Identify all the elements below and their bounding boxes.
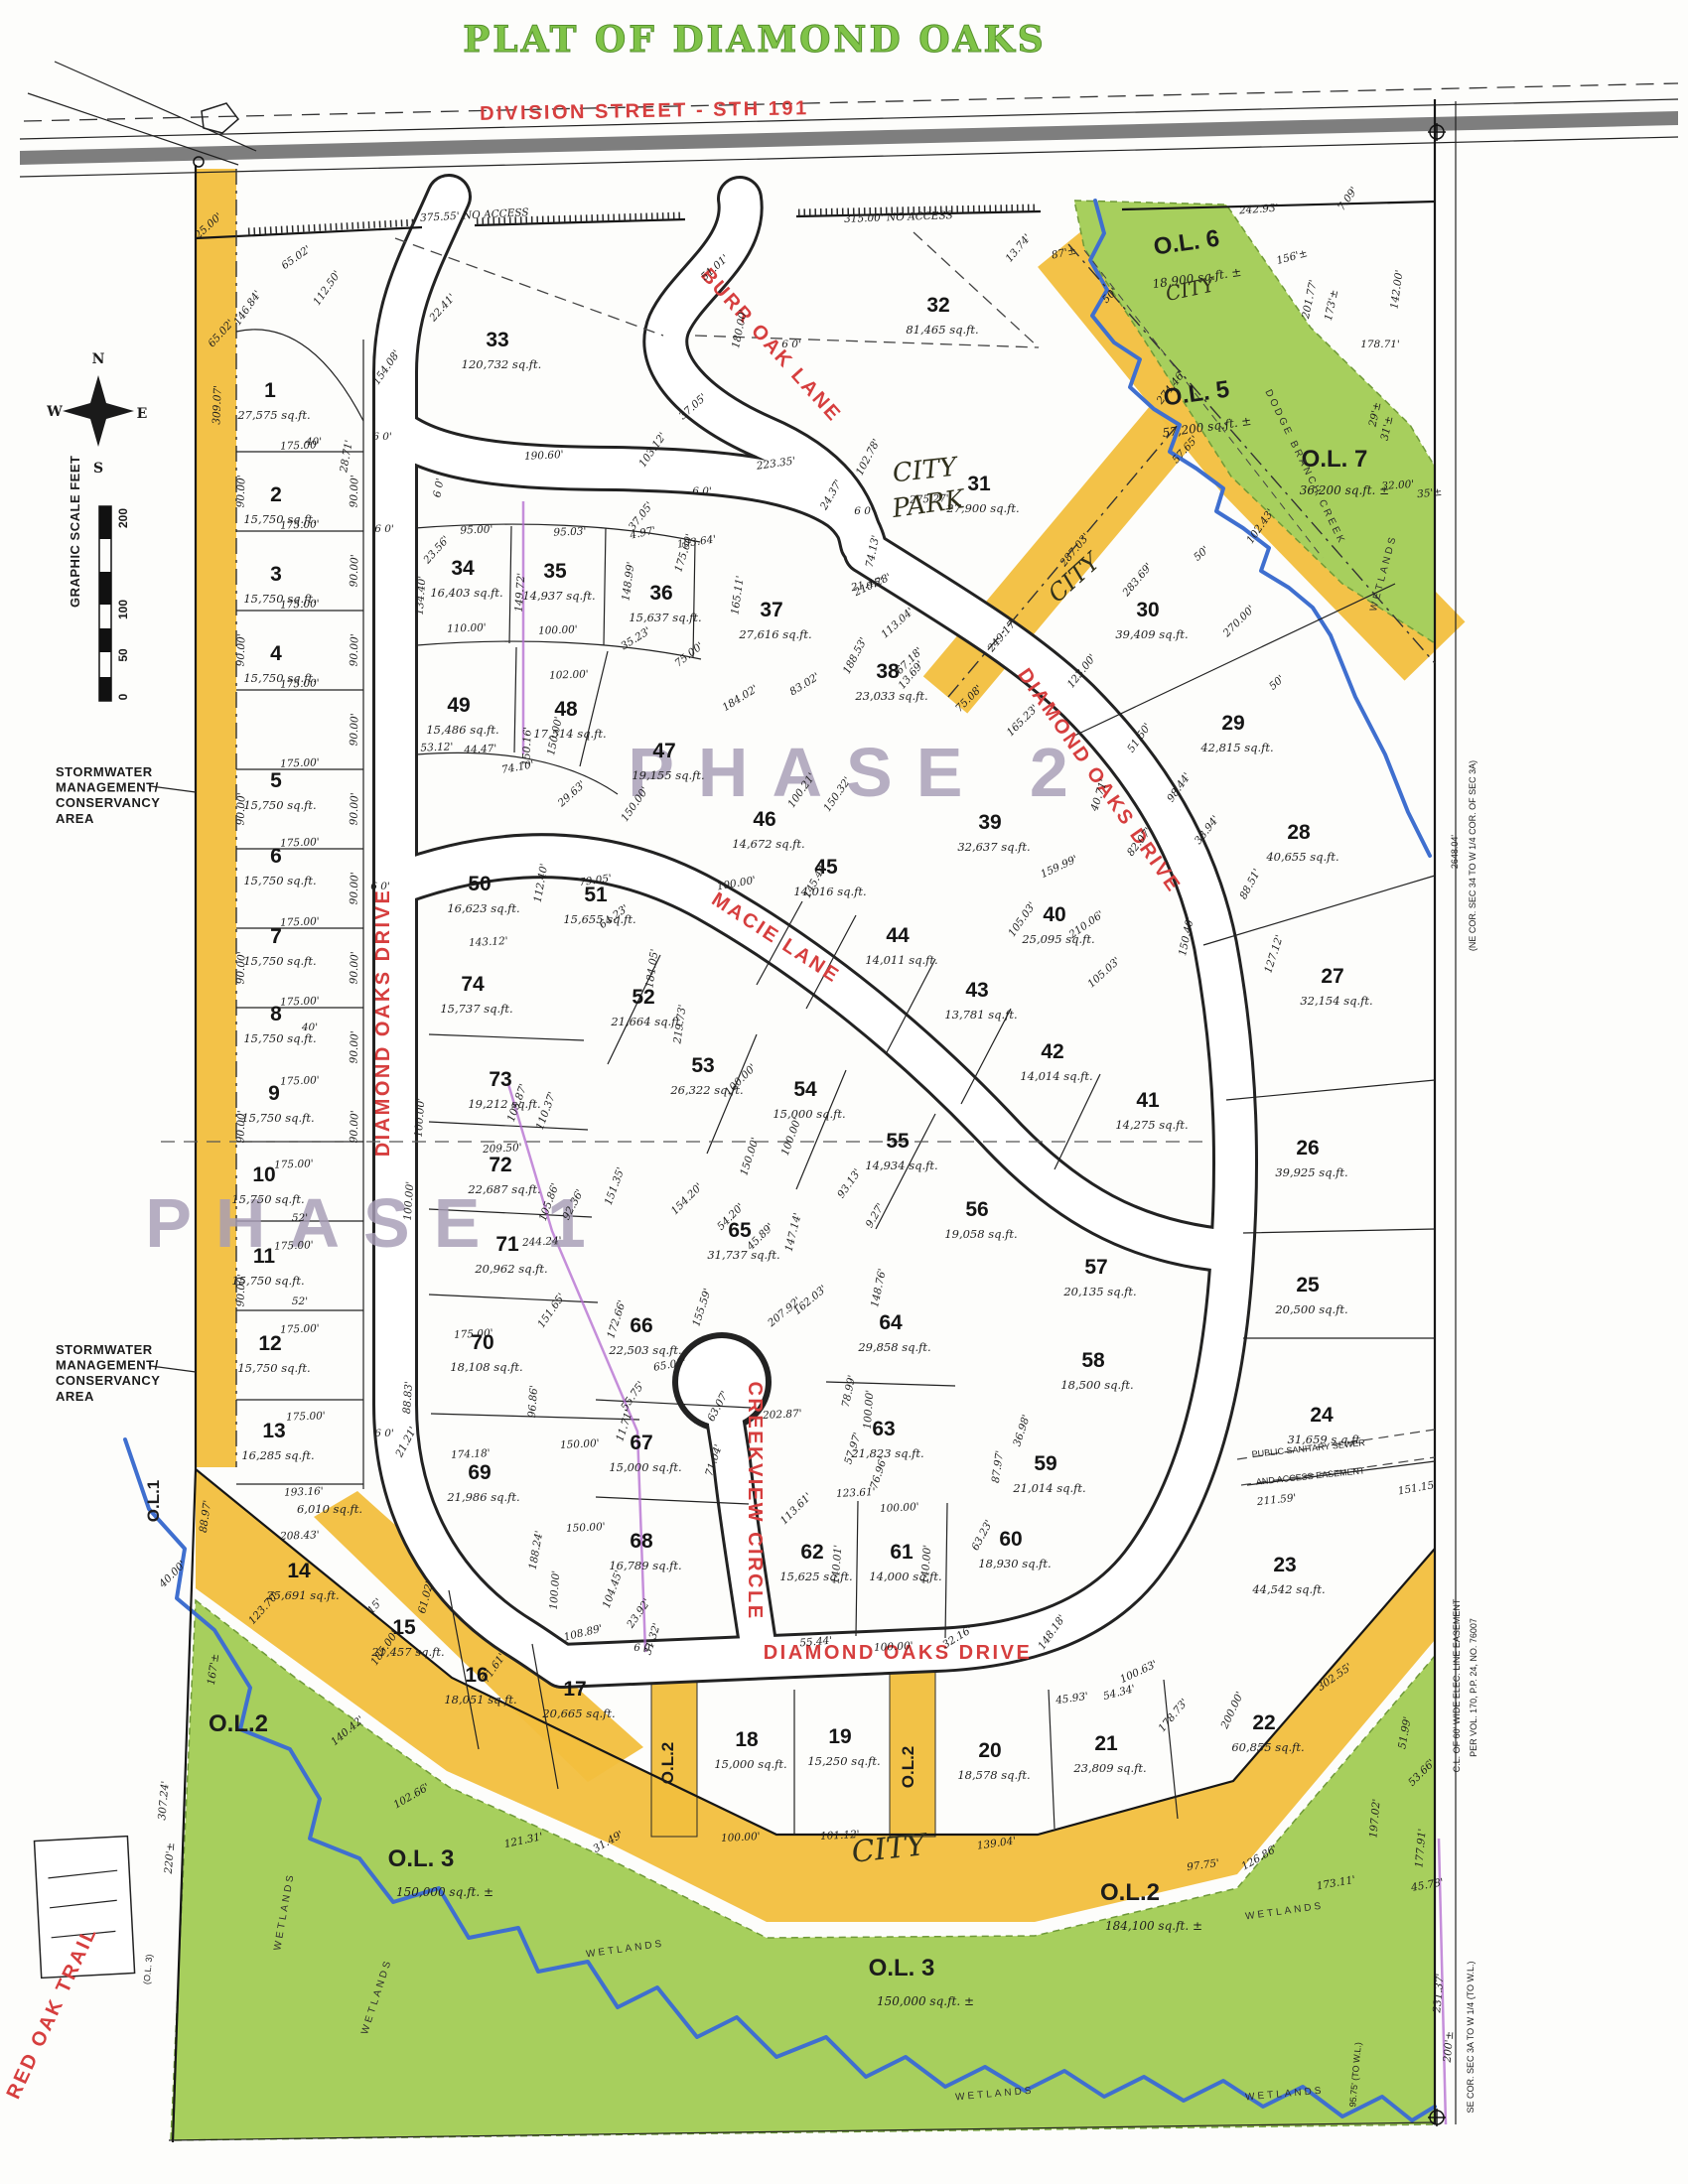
lot-area: 32,637 sq.ft. [957,840,1030,854]
dimension-label: 147.14' [782,1212,803,1253]
stormwater-leader-lines [151,786,196,1372]
dimension-label: 178.73' [1156,1697,1191,1734]
lot-number: 43 [965,979,988,1002]
outlot-label: O.L.2 [899,1746,917,1789]
lot-number: 10 [252,1163,275,1186]
dimension-label: 95.00' [460,523,492,536]
lot-number: 68 [630,1530,653,1553]
dimension-label: 156'± [1275,247,1309,267]
dimension-label: 22.41' [427,292,459,325]
dimension-label: 159.99' [1039,853,1079,881]
dimension-label: 90.00' [348,792,360,825]
dimension-label: 172.66' [605,1298,629,1339]
lot-area: 15,750 sq.ft. [237,1361,310,1375]
plat-map: PLAT OF DIAMOND OAKS PHASE 1PHASE 2 DIVI… [0,0,1688,2184]
lot-number: 25 [1296,1274,1320,1297]
dimension-label: 175.00' [280,915,320,928]
lot-number: 4 [270,642,282,665]
lot-number: 37 [760,599,782,621]
annotation-note: GRAPHIC SCALE FEET [68,456,82,608]
dimension-label: 54.34' [1102,1683,1137,1703]
lot-area: 19,155 sq.ft. [632,768,704,782]
dimension-label: 105.03' [1085,955,1122,990]
lot-number: 58 [1081,1349,1105,1372]
dimension-label: 165.11' [729,575,746,615]
dimension-label: 100.00' [779,1116,804,1157]
lot-number: 41 [1136,1089,1160,1112]
division-dashed-line [24,83,1678,121]
lot-number: 22 [1252,1711,1275,1734]
dimension-label: 193.16' [284,1485,324,1498]
dimension-label: 175.00' [280,995,320,1008]
lot-number: 63 [872,1418,895,1440]
lot-area: 21,014 sq.ft. [1012,1481,1085,1495]
plat-map-sheet: PLAT OF DIAMOND OAKS PHASE 1PHASE 2 DIVI… [0,0,1688,2184]
dimension-label: 104.45' [601,1569,626,1609]
dimension-label: 100.00' [413,1098,428,1138]
dimension-label: 108.89' [563,1622,604,1643]
outlot2-street-stub-east [890,1648,935,1837]
dimension-label: 6 0' [370,881,390,892]
annotation-lota: 6,010 sq.ft. [297,1502,362,1516]
lot-number: 35 [543,560,567,583]
dimension-label: 242.93' [1238,203,1279,217]
dimension-label: 151.65' [535,1292,568,1330]
dimension-label: 88.51' [1237,867,1263,901]
street-name-label: DIAMOND OAKS DRIVE [372,888,394,1158]
lot-area: 14,937 sq.ft. [522,589,595,603]
lot-area: 23,809 sq.ft. [1072,1761,1146,1775]
dimension-label: 309.07' [211,385,223,425]
lot-number: 69 [468,1461,491,1484]
dimension-label: 175.00' [280,439,320,452]
dimension-label: 100.63' [1118,1658,1159,1686]
lot-area: 15,486 sq.ft. [426,723,498,737]
dimension-label: 175.00' [274,1239,314,1252]
lot-area: 18,578 sq.ft. [957,1768,1030,1782]
dimension-label: 90.00' [348,475,360,507]
lot-area: 20,962 sq.ft. [474,1262,547,1276]
lot-number: 59 [1034,1452,1056,1475]
lot-area: 120,732 sq.ft. [462,357,542,371]
dimension-label: 211.59' [1255,1492,1297,1508]
lot-number: 54 [793,1078,817,1101]
division-street-band [20,62,1678,177]
annotation-compass: S [93,461,103,477]
dimension-label: 315.00' NO ACCESS [844,209,953,225]
dimension-label: 95.03' [553,525,586,538]
lot-area: 14,934 sq.ft. [865,1159,937,1172]
dimension-label: 219.73' [671,1004,689,1045]
lot-area: 21,664 sq.ft. [610,1015,683,1028]
dimension-label: 100.00' [721,1831,761,1844]
dimension-label: 90.00' [348,554,360,587]
outlot-area: 150,000 sq.ft. ± [877,1994,974,2008]
lot-number: 5 [270,769,282,792]
dimension-label: 90.00' [234,1110,247,1143]
dimension-label: 100.00' [880,1501,919,1515]
dimension-label: 32.00' [1381,478,1415,492]
lot-number: 55 [886,1130,910,1153]
dimension-label: 174.18' [451,1447,491,1461]
east-lot-separators [1072,584,1435,1485]
lot-number: 24 [1310,1404,1334,1427]
dimension-label: 36.98' [1011,1414,1033,1448]
outlot-area: 184,100 sq.ft. ± [1105,1919,1202,1933]
dimension-label: 6 0' [692,485,712,497]
lot-number: 61 [890,1541,914,1564]
lot-area: 20,500 sq.ft. [1274,1302,1347,1316]
dimension-label: 113.04' [879,606,915,640]
dimension-label: 7.09' [1336,185,1360,212]
lot-number: 39 [978,811,1001,834]
lot-area: 14,275 sq.ft. [1115,1118,1188,1132]
outlot-label: O.L.2 [1100,1879,1160,1906]
lot-area: 81,465 sq.ft. [906,323,978,337]
annotation-compass: W [46,404,63,420]
dimension-label: 29.63' [555,778,588,810]
annotation-note: STORMWATERMANAGEMENT/CONSERVANCYAREA [56,1342,160,1404]
dimension-label: 23.92' [625,1596,653,1631]
lot-number: 67 [630,1432,652,1454]
dimension-label: 200.00' [1218,1690,1246,1731]
lot-area: 15,737 sq.ft. [440,1002,512,1016]
dimension-label: 6 0' [372,431,392,443]
annotation-scalenum: 200 [116,508,130,528]
lot-area: 18,500 sq.ft. [1060,1378,1133,1392]
dimension-label: 13.74' [1004,232,1034,265]
lot-number: 2 [270,483,282,506]
lot-number: 46 [753,808,775,831]
dimension-label: 148.99' [620,561,636,602]
lot-area: 16,285 sq.ft. [241,1448,314,1462]
annotation-tiny: (NE COR. SEC 34 TO W 1/4 COR. OF SEC 3A) [1468,760,1477,951]
dimension-label: 175.00' [280,677,320,690]
lot-number: 66 [630,1314,652,1337]
dimension-label: 102.00' [549,668,589,681]
outlot-label: O.L.1 [144,1480,163,1523]
lot-area: 23,033 sq.ft. [854,689,927,703]
outlot-label: O.L. 3 [388,1845,455,1872]
lot-area: 16,789 sq.ft. [609,1559,681,1572]
dimension-label: 150.00' [566,1521,606,1535]
lot-area: 15,000 sq.ft. [714,1757,786,1771]
dimension-label: 184.02' [720,683,760,714]
lot-area: 15,000 sq.ft. [609,1460,681,1474]
lot-number: 11 [253,1245,276,1268]
dimension-label: 90.00' [348,1110,360,1143]
dimension-label: 87.97' [990,1449,1006,1483]
lot-area: 15,000 sq.ft. [773,1107,845,1121]
dimension-label: 50' [1267,673,1287,693]
annotation-scalenum: 50 [116,648,130,662]
dimension-label: 155.59' [690,1287,714,1327]
lot-area: 19,058 sq.ft. [944,1227,1017,1241]
lot-number: 36 [649,582,672,605]
dimension-label: 6 0' [374,523,394,535]
dimension-label: 6 0' [781,339,801,350]
annotation-tiny: C.L. OF 60' WIDE ELEC. LINE EASEMENT [1452,1598,1462,1772]
dimension-label: 113.61' [778,1491,815,1528]
lot-area: 15,750 sq.ft. [241,1111,314,1125]
dimension-label: 175.00' [280,1074,320,1087]
dimension-label: 184.05' [643,948,660,989]
lot-area: 15,750 sq.ft. [243,798,316,812]
lot-area: 40,655 sq.ft. [1265,850,1338,864]
dimension-label: 100.00' [538,623,578,636]
dimension-label: 150.00' [560,1437,600,1451]
lot-number: 56 [965,1198,988,1221]
dimension-label: 190.60' [524,449,564,463]
dimension-label: 52' [292,1212,308,1224]
dimension-label: 90.00' [348,872,360,904]
annotation-hand: CITY [891,452,960,488]
outlot-label: O.L. 3 [869,1955,935,1981]
scale-seg [99,628,111,652]
dimension-label: 44.47' [463,743,497,756]
dimension-label: 127.12' [1262,933,1286,974]
lot-number: 19 [828,1725,851,1748]
lot-area: 14,011 sq.ft. [865,953,937,967]
lot-number: 42 [1041,1040,1063,1063]
annotation-compass: E [137,406,148,422]
dimension-label: 134.40' [414,576,429,615]
dimension-label: 173'± [1323,289,1340,323]
dimension-label: 110.00' [447,621,487,634]
dimension-label: 40.00' [156,1559,188,1590]
lot-number: 3 [270,563,282,586]
dimension-label: 188.24' [527,1530,546,1570]
page-title: PLAT OF DIAMOND OAKS [463,19,1047,61]
lot-number: 49 [447,694,470,717]
dimension-label: 6 0' [431,478,446,498]
dimension-label: 6 0' [854,505,874,517]
outlot-label: O.L.2 [209,1710,268,1737]
dimension-label: 100.00' [874,1640,914,1654]
lot-number: 40 [1043,903,1065,926]
dimension-label: 188.53' [841,635,870,676]
lot-number: 50 [468,873,491,895]
dimension-label: 202.87' [762,1408,802,1422]
dimension-label: 175.00' [280,836,320,849]
lot-number: 18 [735,1728,759,1751]
lot-number: 47 [652,740,675,762]
annotation-scalenum: 0 [116,693,130,700]
dimension-label: 63.23' [969,1518,995,1553]
lot-area: 15,637 sq.ft. [629,611,701,624]
dimension-label: 143.12' [469,935,508,949]
lot-area: 14,672 sq.ft. [732,837,804,851]
dimension-label: 103.64' [676,533,717,550]
road-fills [395,197,1235,1666]
lot-area: 44,542 sq.ft. [1251,1582,1325,1596]
lot-area: 21,823 sq.ft. [850,1446,923,1460]
dimension-label: 40' [301,1022,318,1033]
lot-area: 22,503 sq.ft. [608,1343,681,1357]
dimension-label: 270.00' [1220,604,1257,640]
dimension-label: 96.86' [526,1385,540,1419]
outlot-label: O.L.2 [658,1742,677,1785]
annotation-hand: PARK [890,484,968,524]
annotation-note: STORMWATERMANAGEMENT/CONSERVANCYAREA [56,764,160,826]
lot-number: 23 [1273,1554,1296,1576]
dimension-label: 52' [292,1296,308,1307]
scale-seg [99,506,111,539]
dimension-label: 151.15' [1397,1479,1438,1498]
dimension-label: 90.00' [234,475,247,507]
dimension-label: 90.00' [234,792,247,825]
lot-area: 21,986 sq.ft. [446,1490,519,1504]
dimension-label: 220'± [163,1842,178,1875]
annotation-tiny: AND ACCESS EASEMENT [1255,1465,1365,1486]
annotation-tiny: (O.L. 3) [142,1954,155,1984]
dimension-label: 50' [1192,544,1211,564]
dimension-label: 78.99' [840,1374,859,1409]
dimension-label: 175.00' [280,1322,320,1335]
dimension-label: 102.78' [854,437,883,478]
scale-seg [99,677,111,701]
lot-number: 17 [563,1678,586,1701]
lot-area: 20,135 sq.ft. [1062,1285,1136,1298]
annotation-tiny: 2648.04' [1450,835,1460,870]
lot-number: 20 [978,1739,1001,1762]
diamond-oaks-drive-west-casing [395,197,562,1666]
dimension-label: 74.10' [500,758,535,776]
lot-area: 18,108 sq.ft. [450,1360,522,1374]
dimension-label: 88.83' [401,1381,415,1415]
dimension-label: 90.00' [234,951,247,984]
dimension-label: 175.00' [280,756,320,769]
lot-area: 39,925 sq.ft. [1275,1165,1347,1179]
lot-number: 53 [691,1054,714,1077]
dimension-label: 100.00' [548,1570,563,1610]
compass-rose-icon [63,375,134,447]
lot-number: 21 [1094,1732,1118,1755]
lot-number: 62 [800,1541,823,1564]
dimension-label: 149.72' [513,573,528,613]
lot-area: 15,750 sq.ft. [231,1192,304,1206]
lot-area: 22,687 sq.ft. [467,1182,540,1196]
dimension-label: 90.00' [348,951,360,984]
ramp-island [202,103,238,133]
dimension-label: 154.20' [669,1181,706,1218]
lot-number: 74 [461,973,485,996]
lot-number: 9 [268,1082,280,1105]
dimension-label: 6 0' [633,1642,653,1654]
dimension-label: 178.71' [1360,339,1400,350]
dimension-label: 244.24' [521,1235,562,1249]
dimension-label: 201.77' [1300,279,1320,321]
lot-area: 18,051 sq.ft. [444,1693,516,1706]
outlot-area: 150,000 sq.ft. ± [396,1885,493,1899]
dimension-label: 142.00' [1388,269,1405,310]
lot-area: 60,855 sq.ft. [1231,1740,1304,1754]
dimension-label: 148.76' [869,1268,889,1308]
lot-number: 60 [999,1528,1022,1551]
lot-number: 73 [489,1068,511,1091]
lot-area: 15,750 sq.ft. [243,954,316,968]
lot-number: 57 [1084,1256,1107,1279]
dimension-label: 175.00' [274,1158,314,1170]
outlot1-yellow-strip [196,169,236,1467]
lot-number: 31 [967,473,991,495]
dimension-label: 283.69' [1120,561,1155,600]
dimension-label: 53.12' [420,741,453,753]
dimension-label: 90.00' [348,1030,360,1063]
diamond-oaks-drive-east-casing [562,552,1235,1666]
lot-number: 14 [287,1560,311,1582]
dimension-label: 65.02' [279,243,313,272]
lot-number: 26 [1296,1137,1319,1160]
dimension-label: 45.93' [1054,1691,1088,1707]
lot-number: 33 [486,329,508,351]
dimension-label: 307.24' [156,1780,171,1821]
lot-area: 17,514 sq.ft. [533,727,606,741]
lot-number: 71 [495,1233,519,1256]
lot-area: 19,212 sq.ft. [468,1097,540,1111]
dimension-label: 208.43' [279,1529,320,1542]
dimension-label: 90.00' [234,1274,247,1306]
lot-number: 1 [264,379,276,402]
dimension-label: 93.13' [835,1166,864,1200]
road-casings [395,197,1235,1666]
dimension-label: 28.71' [338,439,355,475]
dimension-label: 175.00' [280,518,320,531]
lot-area: 27,575 sq.ft. [236,408,310,422]
lot-area: 31,737 sq.ft. [707,1248,779,1262]
diamond-oaks-drive-east-fill [562,552,1235,1666]
dimension-label: 90.00' [348,633,360,666]
lot-area: 27,616 sq.ft. [738,627,811,641]
lot-area: 39,409 sq.ft. [1115,627,1188,641]
lot-number: 32 [926,294,949,317]
lot-number: 72 [489,1154,511,1176]
annotation-tiny: SE COR. SEC 3A TO W 1/4 (TO W.L.) [1466,1961,1476,2113]
dimension-label: 23.56' [421,534,453,567]
dimension-label: 175.00' [280,598,320,611]
lot-area: 15,250 sq.ft. [807,1754,880,1768]
lot-area: 20,665 sq.ft. [541,1706,615,1720]
lot-area: 25,095 sq.ft. [1021,932,1094,946]
lot-number: 30 [1136,599,1159,621]
lot-number: 64 [879,1311,903,1334]
dimension-label: 112.50' [311,269,344,308]
lot-number: 28 [1287,821,1311,844]
annotation-scalenum: 100 [116,600,130,619]
dimension-label: 209.50' [482,1142,522,1156]
annotation-tiny: PER VOL. 170, P.P. 24, NO. 76007 [1469,1618,1478,1757]
lot-number: 34 [451,557,475,580]
lot-number: 27 [1321,965,1343,988]
lot-area: 16,403 sq.ft. [430,586,502,600]
scale-seg [99,572,111,605]
dimension-label: 6 0' [374,1428,394,1439]
dimension-label: 123.61' [836,1486,876,1500]
dimension-label: 35'± [1417,486,1443,501]
dimension-label: 175.00' [286,1410,326,1423]
lot-area: 29,858 sq.ft. [857,1340,930,1354]
lot-number: 13 [262,1420,285,1442]
dimension-label: 90.00' [348,713,360,746]
lot-area: 32,154 sq.ft. [1300,994,1372,1008]
lot-area: 16,623 sq.ft. [447,901,519,915]
annotation-compass: N [92,351,105,367]
dimension-label: 175.00' [454,1327,493,1341]
lot-area: 14,014 sq.ft. [1020,1069,1092,1083]
lot-number: 12 [258,1332,281,1355]
dimension-label: 90.00' [234,633,247,666]
lot-area: 13,781 sq.ft. [944,1008,1017,1022]
